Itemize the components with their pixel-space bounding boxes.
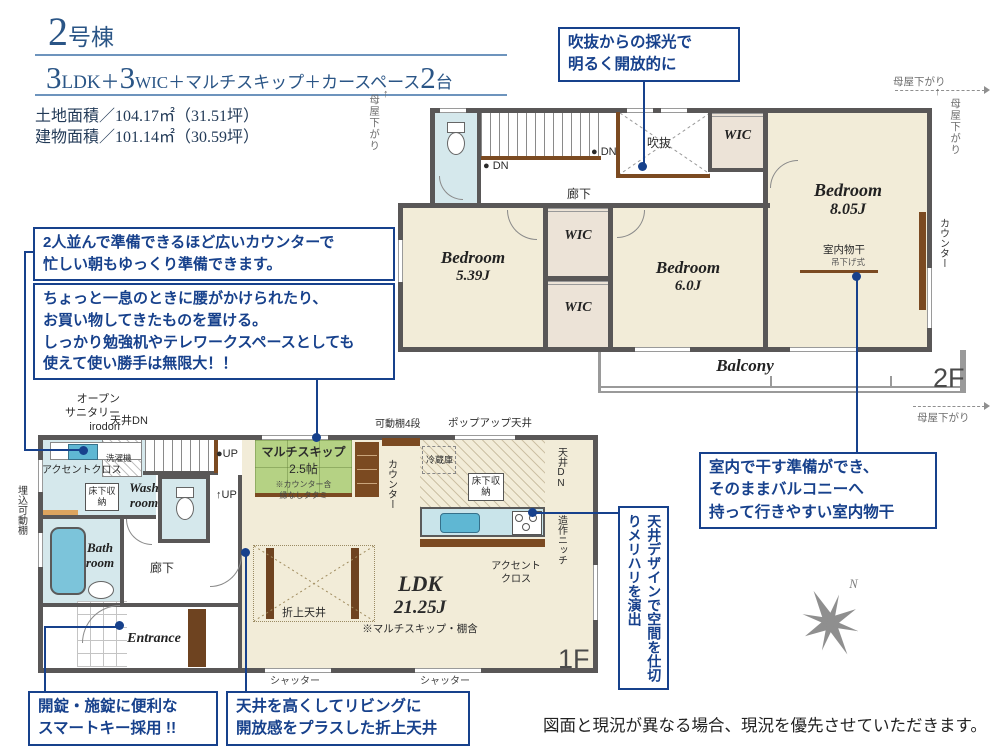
compass-rose-icon: N xyxy=(788,575,878,670)
multi-skip-note: 縁なしタタミ xyxy=(255,490,352,501)
ldk-label: LDK 21.25J ※マルチスキップ・棚含 xyxy=(360,571,480,636)
connector-line xyxy=(44,626,46,692)
counter-steps xyxy=(357,469,377,470)
wic-label: WIC xyxy=(548,228,608,244)
connector-line xyxy=(536,512,620,514)
wall xyxy=(765,108,932,113)
connector-line xyxy=(24,449,82,451)
wall xyxy=(593,435,598,673)
connector-line xyxy=(856,279,858,452)
balcony-post xyxy=(890,376,892,387)
underfloor-storage-label: 床下収納 xyxy=(468,473,504,501)
connector-dot xyxy=(528,508,537,517)
spec-text: 台 xyxy=(436,73,453,92)
window xyxy=(790,347,858,352)
moya-sagari-label: 母屋下がり xyxy=(948,98,961,176)
spec-line: 3LDK＋3WIC＋マルチスキップ＋カースペース2台 xyxy=(46,60,453,96)
wall xyxy=(430,108,770,113)
wall xyxy=(430,108,435,203)
void-rail xyxy=(616,112,620,178)
room-name: LDK xyxy=(360,571,480,597)
plan-1f: オープン サニタリー irodori 天井DN アクセントクロス 洗濯機 床下収… xyxy=(30,415,615,695)
window xyxy=(455,435,515,440)
wall xyxy=(120,515,124,607)
bath-stool xyxy=(88,581,114,599)
balcony-post xyxy=(770,376,772,387)
wic-label: WIC xyxy=(712,128,763,144)
up-label: UP xyxy=(222,489,237,501)
wic-floor xyxy=(548,208,608,280)
window xyxy=(398,240,403,282)
wic-label: WIC xyxy=(548,300,608,316)
callout-ceiling-design: 天井デザインで空間を仕切りメリハリを演出 xyxy=(618,506,669,690)
accent-cloth-label: アクセントクロス xyxy=(42,465,122,478)
window xyxy=(265,668,331,673)
stairs-up-label: ●UP xyxy=(216,448,238,462)
open-sanitary-label: オープン サニタリー irodori xyxy=(35,393,120,434)
wall xyxy=(398,203,770,208)
connector-dot xyxy=(852,272,861,281)
wic-floor xyxy=(548,281,608,351)
indoor-drying-sub: 吊下げ式 xyxy=(831,257,865,268)
stairs-dn-label: ● DN xyxy=(591,146,617,160)
shutter-label: シャッター xyxy=(270,676,320,689)
stove-burner xyxy=(515,514,523,522)
bedroom-b-label: Bedroom 5.39J xyxy=(413,248,533,285)
building-area: 建物面積／101.14㎡（30.59坪） xyxy=(35,123,259,147)
bedroom-a-floor xyxy=(768,113,927,347)
balcony-rail xyxy=(598,386,966,388)
compass-north: N xyxy=(848,577,858,591)
compass: N xyxy=(788,575,878,670)
washroom-label: Wash room xyxy=(124,481,164,511)
wall xyxy=(238,475,242,607)
counter-label: カウンター xyxy=(936,218,949,284)
balcony-label: Balcony xyxy=(685,356,805,376)
connector-line xyxy=(24,251,26,451)
bedroom-a-label: Bedroom 8.05J xyxy=(793,180,903,219)
wall xyxy=(206,475,210,543)
stairs-up-label: ↑UP xyxy=(216,489,237,503)
room-name: Bedroom xyxy=(793,180,903,201)
wall xyxy=(158,475,210,479)
ceiling-dn-label: 天井DN xyxy=(554,447,567,503)
window xyxy=(593,565,598,620)
drying-pole xyxy=(800,270,878,273)
folded-ceiling-label: 折上天井 xyxy=(282,607,326,621)
shelf-board xyxy=(382,438,420,446)
toilet-icon xyxy=(176,497,194,520)
void-label: 吹抜 xyxy=(647,136,671,151)
unit-suffix: 号棟 xyxy=(68,25,114,50)
spec-num: 2 xyxy=(420,60,436,95)
counter-steps xyxy=(357,483,377,484)
washer-label: 洗濯機 xyxy=(106,453,132,464)
movable-shelf-label: 可動棚4段 xyxy=(375,419,421,432)
room-name: Bedroom xyxy=(623,258,753,278)
room-size: 5.39J xyxy=(413,268,533,285)
stairs-up xyxy=(145,440,215,473)
unit-number: 2 xyxy=(48,9,68,54)
toilet-icon xyxy=(447,132,465,155)
shoe-cabinet xyxy=(188,609,206,667)
wall xyxy=(238,603,242,673)
niche-label: 造作ニッチ xyxy=(554,515,567,575)
corridor-label: 廊下 xyxy=(567,187,591,202)
window xyxy=(415,668,481,673)
callout-wide-counter: 2人並んで準備できるほど広いカウンターで 忙しい朝もゆっくり準備できます。 xyxy=(33,227,395,281)
popup-ceiling-label: ポップアップ天井 xyxy=(448,417,532,430)
window xyxy=(661,108,687,113)
floor-1f-label: 1F xyxy=(558,643,590,677)
counter-label: カウンター xyxy=(384,459,397,525)
stairs-dn-label: ● DN xyxy=(483,160,509,174)
room-size: 8.05J xyxy=(793,201,903,219)
multi-skip-note: ※カウンター含 xyxy=(255,479,352,490)
moya-arrow xyxy=(913,406,985,407)
counter-board xyxy=(919,212,926,310)
connector-dot xyxy=(241,548,250,557)
accent-cloth-label: アクセント クロス xyxy=(485,561,547,586)
window xyxy=(38,533,43,567)
wall xyxy=(543,276,613,281)
arrow-right-icon xyxy=(984,86,990,94)
multi-skip-name: マルチスキップ xyxy=(255,443,352,460)
callout-smart-key: 開錠・施錠に便利な スマートキー採用 !! xyxy=(28,691,218,746)
connector-dot xyxy=(638,162,647,171)
bedroom-c-label: Bedroom 6.0J xyxy=(623,258,753,295)
room-name: Bedroom xyxy=(413,248,533,268)
indoor-drying-label: 室内物干 xyxy=(823,244,865,257)
door-arc xyxy=(126,519,152,545)
spec-num: 3 xyxy=(46,60,62,95)
multi-skip-label: マルチスキップ 2.5帖 ※カウンター含 縁なしタタミ xyxy=(255,443,352,501)
window xyxy=(440,108,466,113)
underfloor-storage-label: 床下収納 xyxy=(85,483,119,511)
room-note: ※マルチスキップ・棚含 xyxy=(360,621,480,636)
spec-text: WIC＋マルチスキップ＋カースペース xyxy=(135,73,420,92)
plan-2f: ● DN ● DN 吹抜 廊下 WIC WIC WIC Bedroom 5.39… xyxy=(395,100,955,435)
corridor-label: 廊下 xyxy=(150,561,174,576)
connector-dot xyxy=(312,433,321,442)
wall xyxy=(158,539,210,543)
built-in-shelf xyxy=(43,510,78,515)
wall xyxy=(763,108,768,352)
dn-label: DN xyxy=(493,160,509,172)
room-size: 6.0J xyxy=(623,278,753,295)
sink xyxy=(440,513,480,533)
arrow-right-icon xyxy=(984,402,990,410)
built-in-shelf-label: 埋込可動棚 xyxy=(14,485,27,555)
wall xyxy=(123,603,242,607)
moya-sagari-label: 母屋下がり xyxy=(367,94,380,172)
fridge-label: 冷蔵庫 xyxy=(426,455,453,466)
spec-num: 3 xyxy=(120,60,136,95)
spec-text: LDK＋ xyxy=(62,72,120,93)
entrance-label: Entrance xyxy=(122,631,186,647)
connector-dot xyxy=(115,621,124,630)
void-rail xyxy=(616,174,710,178)
up-label: UP xyxy=(223,448,238,460)
connector-line xyxy=(44,626,120,628)
connector-line xyxy=(316,376,318,437)
ceiling-dn-label: 天井DN xyxy=(110,415,148,429)
window xyxy=(627,108,653,113)
counter-steps xyxy=(357,455,377,456)
dn-label: DN xyxy=(601,146,617,158)
balcony-post xyxy=(598,352,601,393)
shutter-label: シャッター xyxy=(420,676,470,689)
callout-indoor-drying: 室内で干す準備ができ、 そのままバルコニーへ 持って行きやすい室内物干 xyxy=(699,452,937,529)
floorplan-flyer: 2号棟 3LDK＋3WIC＋マルチスキップ＋カースペース2台 土地面積／104.… xyxy=(0,0,1000,751)
wall xyxy=(708,168,767,172)
stove-burner xyxy=(522,523,530,531)
arrow-up-icon: ↑ xyxy=(935,86,941,100)
callout-multi-skip-bench: ちょっと一息のときに腰がかけられたり、 お買い物してきたものを置ける。 しっかり… xyxy=(33,283,395,380)
connector-line xyxy=(245,552,247,692)
balcony-rail xyxy=(598,391,966,393)
disclaimer: 図面と現況が異なる場合、現況を優先させていただきます。 xyxy=(543,712,987,736)
window xyxy=(927,268,932,328)
room-size: 21.25J xyxy=(360,597,480,619)
window xyxy=(635,347,690,352)
connector-line xyxy=(643,76,645,168)
bathroom-label: Bath room xyxy=(80,541,120,571)
accent-band xyxy=(420,539,545,547)
moya-sagari-label: 母屋下がり xyxy=(917,412,970,425)
callout-folded-ceiling: 天井を高くしてリビングに 開放感をプラスした折上天井 xyxy=(226,691,470,746)
connector-dot xyxy=(79,446,88,455)
stairs-down xyxy=(481,113,599,158)
multi-skip-size: 2.5帖 xyxy=(255,460,352,477)
callout-void-light: 吹抜からの採光で 明るく開放的に xyxy=(558,27,740,82)
wall xyxy=(143,471,218,475)
floor-2f-label: 2F xyxy=(933,362,965,396)
page-title: 2号棟 xyxy=(48,8,114,55)
